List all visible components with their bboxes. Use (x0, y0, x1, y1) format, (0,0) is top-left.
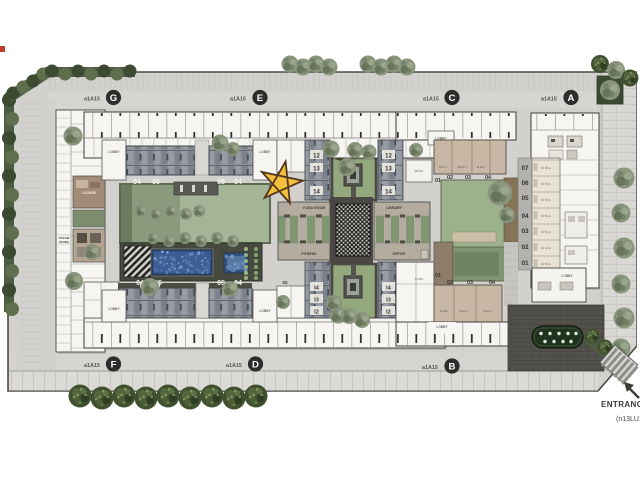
svg-text:04: 04 (234, 179, 242, 186)
svg-text:ROOM: ROOM (59, 240, 69, 244)
svg-text:a1A15: a1A15 (422, 365, 438, 371)
svg-text:ENTRANCE: ENTRANCE (601, 400, 640, 409)
svg-text:LOBBY: LOBBY (108, 307, 120, 311)
svg-text:03: 03 (521, 228, 529, 235)
svg-text:04: 04 (133, 179, 141, 186)
svg-text:05: 05 (152, 179, 160, 186)
svg-text:05: 05 (521, 195, 529, 202)
svg-text:LIBRARY: LIBRARY (386, 206, 402, 210)
svg-text:25.79 m: 25.79 m (541, 182, 552, 186)
svg-text:a1A15: a1A15 (541, 97, 557, 103)
svg-text:43.22 m: 43.22 m (459, 309, 468, 313)
svg-text:LOBBY: LOBBY (561, 274, 573, 278)
svg-text:12: 12 (385, 154, 392, 160)
svg-text:OFFICE: OFFICE (392, 252, 406, 256)
svg-text:I3: I3 (386, 298, 391, 304)
svg-text:LOBBY: LOBBY (108, 150, 120, 154)
svg-text:01: 01 (435, 273, 441, 279)
svg-text:31.54 m: 31.54 m (541, 230, 552, 234)
svg-text:a1A15: a1A15 (84, 363, 100, 369)
svg-text:38.49 m: 38.49 m (457, 165, 466, 169)
svg-text:14: 14 (385, 190, 392, 196)
svg-text:06: 06 (521, 180, 529, 187)
svg-text:28.70m: 28.70m (415, 169, 424, 173)
svg-text:LOBBY: LOBBY (259, 309, 271, 313)
svg-text:04: 04 (521, 213, 529, 220)
svg-text:14: 14 (313, 190, 320, 196)
svg-text:04: 04 (489, 280, 495, 286)
svg-text:(n13LU1): (n13LU1) (616, 416, 640, 423)
svg-text:E: E (257, 93, 264, 104)
svg-text:a1A15: a1A15 (230, 97, 246, 103)
svg-text:02: 02 (447, 280, 453, 286)
svg-text:I2: I2 (386, 310, 391, 316)
svg-text:YOGA ROOM: YOGA ROOM (303, 206, 326, 210)
svg-text:33.83 m: 33.83 m (541, 262, 552, 266)
svg-text:a1A15: a1A15 (84, 97, 100, 103)
svg-text:02: 02 (282, 280, 288, 285)
svg-text:01: 01 (435, 178, 441, 184)
svg-text:a1A15: a1A15 (423, 97, 439, 103)
svg-text:LOBBY: LOBBY (259, 150, 271, 154)
svg-text:44.10 m: 44.10 m (483, 309, 492, 313)
svg-text:LOBBY: LOBBY (436, 325, 448, 329)
svg-text:I2: I2 (314, 310, 319, 316)
svg-text:03: 03 (467, 280, 473, 286)
svg-text:F: F (111, 359, 117, 370)
svg-text:32.42 m: 32.42 m (541, 246, 552, 250)
svg-text:37.26m: 37.26m (415, 277, 424, 281)
svg-text:25.2 m: 25.2 m (439, 165, 447, 169)
svg-text:a1A15: a1A15 (226, 363, 242, 369)
svg-text:25.76 m: 25.76 m (541, 198, 552, 202)
svg-text:LOUNGE: LOUNGE (82, 191, 97, 195)
svg-text:25.69 m: 25.69 m (541, 214, 552, 218)
svg-text:13: 13 (313, 167, 320, 173)
svg-text:02: 02 (521, 244, 529, 251)
svg-text:FITNESS: FITNESS (301, 252, 317, 256)
svg-text:32.29 m: 32.29 m (476, 165, 485, 169)
svg-text:01: 01 (521, 260, 529, 267)
svg-text:07: 07 (521, 165, 529, 172)
svg-text:13: 13 (385, 167, 392, 173)
svg-text:I3: I3 (314, 298, 319, 304)
svg-text:25.19m: 25.19m (440, 309, 449, 313)
svg-text:A: A (568, 93, 575, 104)
svg-text:D: D (252, 359, 259, 370)
svg-text:B: B (449, 361, 456, 372)
svg-text:12: 12 (313, 154, 320, 160)
svg-text:C: C (449, 93, 456, 104)
svg-text:05: 05 (217, 179, 225, 186)
svg-text:25.36 m: 25.36 m (541, 166, 552, 170)
svg-text:G: G (110, 93, 117, 104)
